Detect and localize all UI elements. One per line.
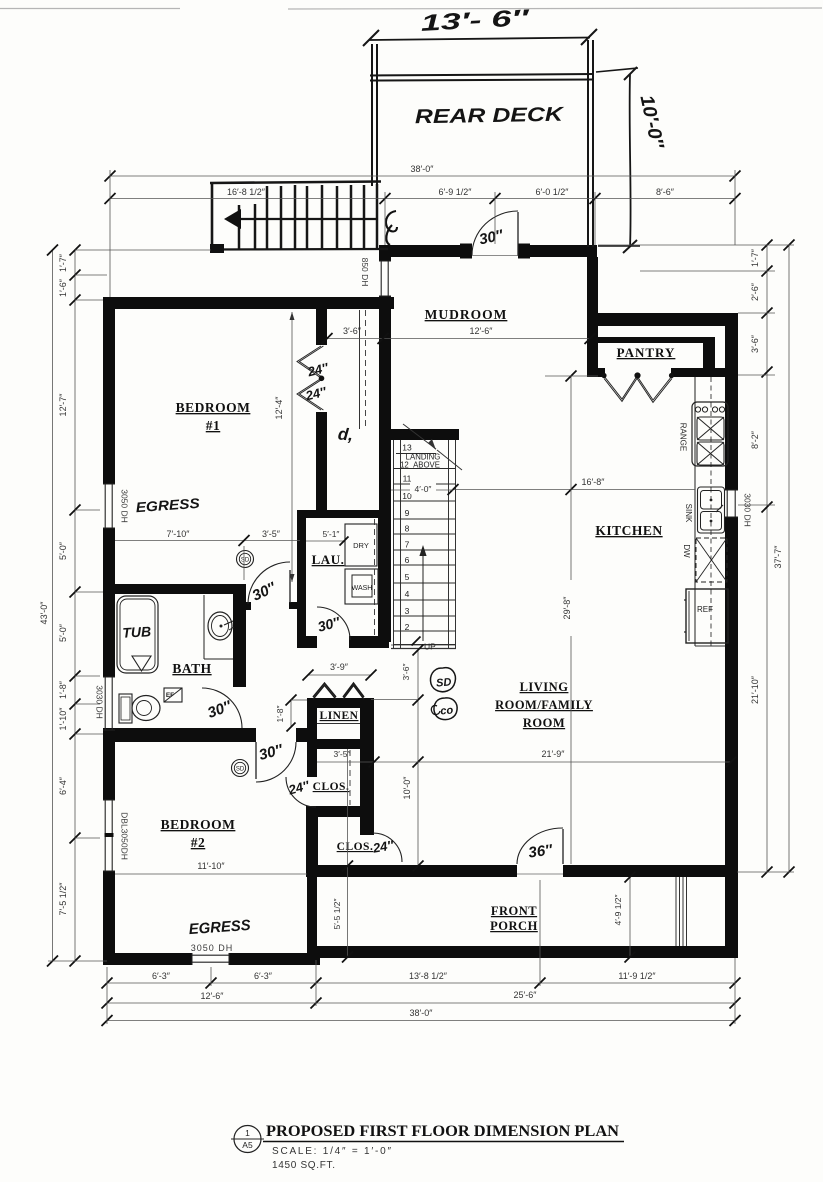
svg-text:SD: SD <box>436 676 452 689</box>
svg-text:1: 1 <box>245 1128 250 1138</box>
svg-text:38′-0″: 38′-0″ <box>411 164 435 174</box>
svg-text:12 ABOVE: 12 ABOVE <box>400 460 440 469</box>
svg-text:5: 5 <box>405 572 410 582</box>
svg-text:12′-6″: 12′-6″ <box>470 326 494 336</box>
svg-text:12′-7″: 12′-7″ <box>58 393 68 417</box>
svg-text:38′-0″: 38′-0″ <box>410 1008 434 1018</box>
svg-text:4: 4 <box>405 589 410 599</box>
svg-text:7′-10″: 7′-10″ <box>167 529 191 539</box>
svg-text:12′-6″: 12′-6″ <box>201 991 225 1001</box>
svg-text:FRONT: FRONT <box>491 904 537 918</box>
svg-text:25′-6″: 25′-6″ <box>514 990 538 1000</box>
svg-text:6: 6 <box>405 555 410 565</box>
svg-text:10′-0″: 10′-0″ <box>402 776 412 800</box>
svg-text:3050 DH: 3050 DH <box>120 489 130 523</box>
svg-text:3: 3 <box>405 606 410 616</box>
svg-text:29′-8″: 29′-8″ <box>562 596 572 620</box>
svg-text:6′-3″: 6′-3″ <box>254 971 273 981</box>
svg-text:1′-8″: 1′-8″ <box>58 680 68 699</box>
svg-text:1′-7″: 1′-7″ <box>58 253 68 272</box>
svg-text:3′-5″: 3′-5″ <box>262 529 281 539</box>
svg-text:LAU.: LAU. <box>312 552 345 567</box>
svg-text:11′-10″: 11′-10″ <box>197 861 225 871</box>
svg-text:5′-1″: 5′-1″ <box>323 529 340 539</box>
svg-text:SINK: SINK <box>684 504 693 523</box>
svg-text:SD: SD <box>241 558 250 564</box>
svg-text:ROOM/FAMILY: ROOM/FAMILY <box>495 698 593 712</box>
svg-text:4′-0″: 4′-0″ <box>415 484 432 494</box>
svg-text:6′-3″: 6′-3″ <box>152 971 171 981</box>
svg-text:LIVING: LIVING <box>520 680 569 694</box>
svg-text:13′-8 1/2″: 13′-8 1/2″ <box>409 971 448 981</box>
svg-text:PROPOSED FIRST FLOOR DIMENS: PROPOSED FIRST FLOOR DIMENSION PLAN <box>266 1123 619 1140</box>
svg-text:16′-8 1/2″: 16′-8 1/2″ <box>227 187 266 197</box>
svg-text:8: 8 <box>405 524 410 534</box>
svg-text:#2: #2 <box>191 835 206 850</box>
svg-text:9: 9 <box>405 508 410 518</box>
svg-text:8′-2″: 8′-2″ <box>750 430 760 449</box>
svg-text:11: 11 <box>403 474 412 484</box>
svg-text:1′-10″: 1′-10″ <box>58 707 68 731</box>
svg-text:3050 DH: 3050 DH <box>191 943 234 953</box>
svg-text:3′-6″: 3′-6″ <box>343 326 362 336</box>
svg-text:SD: SD <box>236 767 245 773</box>
svg-text:DBL3050DH: DBL3050DH <box>120 812 130 860</box>
svg-text:3′-6″: 3′-6″ <box>750 334 760 353</box>
svg-text:LINEN: LINEN <box>320 710 359 722</box>
svg-text:43′-0″: 43′-0″ <box>39 601 49 625</box>
svg-text:KITCHEN: KITCHEN <box>595 523 662 538</box>
svg-text:12′-4″: 12′-4″ <box>274 396 284 420</box>
svg-text:1450 SQ.FT.: 1450 SQ.FT. <box>272 1160 335 1171</box>
svg-text:BEDROOM: BEDROOM <box>176 400 251 415</box>
svg-text:WASH: WASH <box>352 585 373 592</box>
svg-text:4′-9 1/2″: 4′-9 1/2″ <box>613 894 623 925</box>
svg-text:1′-6″: 1′-6″ <box>58 278 68 297</box>
svg-text:7: 7 <box>405 540 410 550</box>
svg-text:PANTRY: PANTRY <box>617 345 676 360</box>
svg-text:21′-10″: 21′-10″ <box>750 675 760 704</box>
svg-text:5′-5 1/2″: 5′-5 1/2″ <box>332 898 342 929</box>
svg-text:TUB: TUB <box>122 623 152 640</box>
svg-text:co: co <box>440 704 454 717</box>
svg-text:21′-9″: 21′-9″ <box>542 749 566 759</box>
svg-text:CLOS.: CLOS. <box>313 781 350 793</box>
svg-text:3′-6″: 3′-6″ <box>401 664 411 681</box>
svg-text:EF: EF <box>166 692 174 699</box>
svg-text:5′-0″: 5′-0″ <box>58 541 68 560</box>
svg-text:REF: REF <box>697 605 713 614</box>
svg-text:DRY: DRY <box>353 541 369 550</box>
svg-text:A5: A5 <box>242 1140 253 1150</box>
svg-text:36″: 36″ <box>527 841 554 861</box>
svg-text:16′-8″: 16′-8″ <box>582 477 606 487</box>
svg-text:RANGE: RANGE <box>679 423 688 451</box>
svg-text:MUDROOM: MUDROOM <box>425 307 508 322</box>
svg-text:6′-0 1/2″: 6′-0 1/2″ <box>536 187 570 197</box>
svg-text:37′-7″: 37′-7″ <box>773 545 783 569</box>
svg-text:#1: #1 <box>206 418 221 433</box>
svg-text:3′-5″: 3′-5″ <box>334 749 351 759</box>
svg-text:6′-9 1/2″: 6′-9 1/2″ <box>439 187 473 197</box>
svg-text:8′-6″: 8′-6″ <box>656 187 675 197</box>
svg-text:850 DH: 850 DH <box>360 258 370 287</box>
svg-text:BEDROOM: BEDROOM <box>161 817 236 832</box>
svg-text:1′-7″: 1′-7″ <box>750 248 760 267</box>
svg-text:11′-9 1/2″: 11′-9 1/2″ <box>618 971 656 981</box>
svg-text:5′-0″: 5′-0″ <box>58 623 68 642</box>
svg-text:7′-5 1/2″: 7′-5 1/2″ <box>58 882 68 916</box>
svg-text:2′-6″: 2′-6″ <box>750 282 760 301</box>
svg-text:PORCH: PORCH <box>490 919 538 933</box>
svg-text:2: 2 <box>405 622 410 632</box>
svg-text:d,: d, <box>337 424 354 444</box>
svg-text:CLOS.: CLOS. <box>337 841 374 853</box>
svg-text:UP: UP <box>424 642 436 652</box>
svg-text:6′-4″: 6′-4″ <box>58 776 68 795</box>
svg-text:BATH: BATH <box>172 661 211 676</box>
svg-text:DW: DW <box>682 544 691 558</box>
svg-text:ROOM: ROOM <box>523 716 565 730</box>
svg-text:REAR DECK: REAR DECK <box>415 104 565 129</box>
svg-text:1′-8″: 1′-8″ <box>275 706 285 723</box>
svg-text:13: 13 <box>402 443 412 453</box>
svg-text:3030 DH: 3030 DH <box>743 493 753 527</box>
svg-text:3′-9″: 3′-9″ <box>330 662 349 672</box>
svg-text:3030 DH: 3030 DH <box>95 685 105 719</box>
